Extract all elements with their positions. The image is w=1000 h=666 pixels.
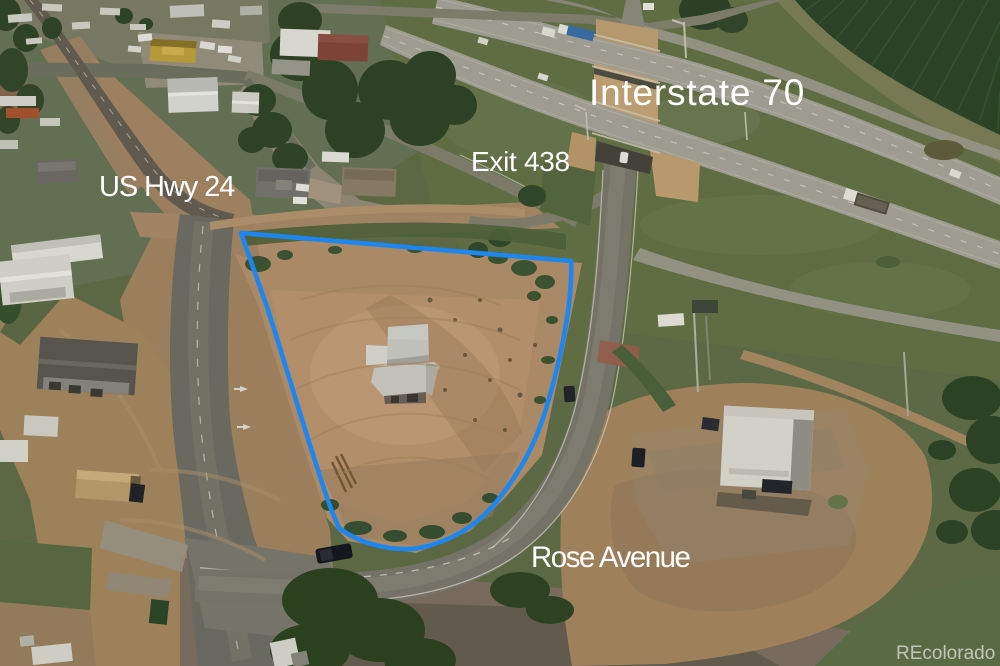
svg-text:Rose Avenue: Rose Avenue [531, 541, 691, 574]
svg-text:Interstate 70: Interstate 70 [589, 72, 805, 113]
svg-text:REcolorado: REcolorado [896, 643, 995, 664]
svg-text:Exit 438: Exit 438 [471, 146, 570, 177]
svg-text:US Hwy 24: US Hwy 24 [99, 171, 235, 203]
